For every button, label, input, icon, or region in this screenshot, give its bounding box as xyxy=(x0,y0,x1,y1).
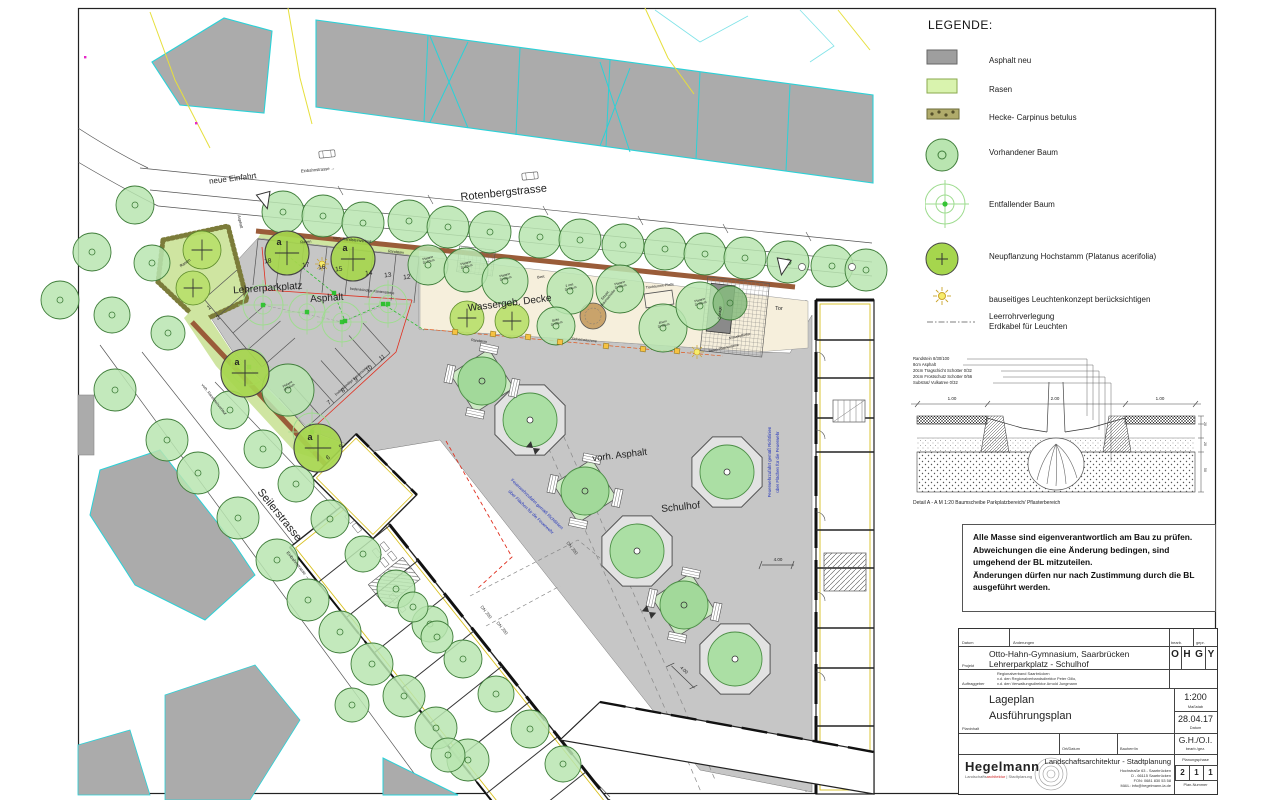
firm-sub-2: architektur xyxy=(987,774,1006,779)
planinhalt-line2: Ausführungsplan xyxy=(989,710,1072,722)
plan-label: 14 xyxy=(365,270,373,278)
detail-side-dim: 20 xyxy=(1203,422,1207,426)
col-datum: Datum xyxy=(962,640,973,645)
bearb-value: G.H./O.I. xyxy=(1174,735,1217,745)
bollard-circle xyxy=(849,264,856,271)
plan-label: 13 xyxy=(384,272,392,280)
existing-tree xyxy=(427,206,469,248)
car-symbol xyxy=(522,172,539,181)
plan-label: Einbahnstrasse → xyxy=(301,166,336,174)
existing-tree xyxy=(469,211,511,253)
detail-callout: 20cm Tragschicht Schotter 0/32 xyxy=(913,368,973,373)
existing-tree xyxy=(319,611,361,653)
datum-value: 28.04.17 xyxy=(1174,714,1217,724)
existing-tree xyxy=(511,710,549,748)
bauherr-label: Bauherr/in xyxy=(1120,746,1138,751)
note-line: ausgeführt werden. xyxy=(973,581,1205,594)
plan-label: 4.00 xyxy=(774,557,783,562)
projekt-label: Projekt xyxy=(962,663,974,668)
light-concept-icon xyxy=(925,286,961,306)
detail-caption: Detail A - A M 1:20 Baumscheibe Parkplat… xyxy=(913,500,1061,506)
existing-tree xyxy=(94,297,130,333)
plan-label: 18 xyxy=(264,258,272,266)
existing-tree xyxy=(537,307,575,345)
existing-tree xyxy=(431,738,465,772)
existing-tree xyxy=(684,233,726,275)
legend-title: LEGENDE: xyxy=(928,18,993,32)
light-marker xyxy=(674,348,680,354)
octagon-planter xyxy=(602,516,672,586)
detail-dim: 1.00 xyxy=(1156,396,1165,401)
phase-cell: 1 xyxy=(1189,765,1204,781)
ort-datum-label: Ort/Datum xyxy=(1062,746,1080,751)
existing-tree xyxy=(94,369,136,411)
plan-label: Garage xyxy=(717,305,723,319)
octagon-planter xyxy=(700,624,770,694)
plan-label: Asphalt xyxy=(310,292,344,305)
detail-callout: Substrat/ Vulkatree 0/32 xyxy=(913,380,958,385)
existing-tree xyxy=(302,195,344,237)
planungsphase-label: Planungsphase xyxy=(1174,757,1217,762)
note-line: Abweichungen die eine Änderung bedingen,… xyxy=(973,544,1205,557)
existing-tree xyxy=(345,536,381,572)
firm-address: MAIL: info@hegelmann-la.de xyxy=(1039,783,1171,788)
plan-label: 12 xyxy=(403,274,411,282)
existing-tree-icon xyxy=(925,136,965,174)
conduit-node xyxy=(343,319,347,323)
light-marker xyxy=(603,343,609,349)
existing-tree xyxy=(351,643,393,685)
legend-panel: LEGENDE: Asphalt neu Rasen Hecke- Carpin… xyxy=(925,18,1215,348)
existing-tree xyxy=(335,688,369,722)
existing-tree xyxy=(287,579,329,621)
plan-label: 17 xyxy=(302,262,310,270)
massstab-label: Maßstab xyxy=(1174,704,1217,709)
phase-cell: 2 xyxy=(1175,765,1190,781)
plan-label: Tor xyxy=(775,306,783,312)
plan-label: Asphalt xyxy=(237,215,245,230)
legend-item-label: Hecke- Carpinus betulus xyxy=(989,113,1077,122)
plan-label: DN 200 xyxy=(496,621,510,636)
plan-nummer-label: Plan-Nummer xyxy=(1174,782,1217,787)
massstab-value: 1:200 xyxy=(1174,692,1217,702)
note-line: Änderungen dürfen nur nach Zustimmung du… xyxy=(973,569,1205,582)
code-letter: O xyxy=(1169,649,1181,660)
existing-tree xyxy=(519,216,561,258)
code-letter: G xyxy=(1193,649,1205,660)
existing-tree xyxy=(278,466,314,502)
light-marker xyxy=(490,331,496,337)
car-symbol xyxy=(319,150,336,159)
col-gepr: gepr. xyxy=(1196,640,1205,645)
existing-tree xyxy=(644,228,686,270)
plan-label: über Flächen für die Feuerwehr xyxy=(775,431,780,493)
existing-tree xyxy=(134,245,170,281)
detail-dim: 1.00 xyxy=(948,396,957,401)
existing-tree xyxy=(388,200,430,242)
existing-tree xyxy=(724,237,766,279)
lawn-swatch-icon xyxy=(925,77,965,95)
existing-tree xyxy=(311,500,349,538)
octagon-planter xyxy=(692,437,762,507)
firm-sub-3: | Stadtplanung xyxy=(1005,774,1032,779)
projekt-line1: Otto-Hahn-Gymnasium, Saarbrücken xyxy=(989,649,1129,659)
light-marker xyxy=(452,329,458,335)
detail-dim-line xyxy=(911,401,1201,407)
plan-label: Feuerwehrzufahrt gemäß Richtlinien xyxy=(767,426,772,497)
detail-side-dim: 20 xyxy=(1203,442,1207,446)
legend-item-label: Rasen xyxy=(989,85,1012,94)
existing-tree xyxy=(421,621,453,653)
code-letter: H xyxy=(1181,649,1193,660)
new-tree-icon xyxy=(925,240,965,278)
firm-name: Hegelmann xyxy=(965,759,1040,774)
light-marker xyxy=(640,346,646,352)
plan-label: Rotenbergstrasse xyxy=(460,183,548,204)
conduit-line-icon xyxy=(925,316,977,328)
plan-label: DN 200 xyxy=(480,605,494,620)
new-tree xyxy=(294,424,342,472)
title-block: Datum Änderungen bearb. gepr. Projekt Ot… xyxy=(958,628,1218,795)
school-building-east xyxy=(816,300,874,794)
existing-tree xyxy=(383,675,425,717)
legend-item-label: Asphalt neu xyxy=(989,56,1031,65)
auftraggeber-label: Auftraggeber xyxy=(962,681,985,686)
bearb-gez-label: bearb./gez. xyxy=(1174,746,1217,751)
plan-label: 16 xyxy=(318,264,326,272)
existing-tree xyxy=(478,676,514,712)
existing-tree xyxy=(146,419,188,461)
legend-item-label: Vorhandener Baum xyxy=(989,148,1058,157)
legend-item-label: bauseitiges Leuchtenkonzept berücksichti… xyxy=(989,295,1150,304)
plan-label: neue Einfahrt xyxy=(209,171,258,186)
existing-tree xyxy=(602,224,644,266)
legend-item-label: Entfallender Baum xyxy=(989,200,1055,209)
light-marker xyxy=(557,339,563,345)
conduit-node xyxy=(381,302,385,306)
existing-tree xyxy=(444,248,488,292)
existing-tree xyxy=(177,452,219,494)
datum-label: Datum xyxy=(1174,725,1217,730)
col-bearb: bearb. xyxy=(1171,640,1182,645)
bollard-circle xyxy=(799,264,806,271)
detail-callout: 20cm Frostschutz Schotter 0/56 xyxy=(913,374,973,379)
firm-sub-1: Landschafts xyxy=(965,774,987,779)
legend-item-label: Leerrohrverlegung xyxy=(989,312,1054,321)
existing-tree xyxy=(41,281,79,319)
north-buildings xyxy=(152,18,873,183)
detail-callout: 8cm Asphalt xyxy=(913,362,937,367)
projekt-line2: Lehrerparkplatz - Schulhof xyxy=(989,659,1089,669)
existing-tree xyxy=(244,430,282,468)
hedge-swatch-icon xyxy=(925,106,965,122)
planinhalt-line1: Lageplan xyxy=(989,694,1034,706)
detail-dim: 2.00 xyxy=(1051,396,1060,401)
code-letter: Y xyxy=(1205,649,1217,660)
planinhalt-label: Planinhalt xyxy=(962,726,979,731)
detail-section-a-a: Randstein 8/30/100 8cm Asphalt 20cm Trag… xyxy=(897,352,1217,508)
existing-tree xyxy=(116,186,154,224)
site-plan-sheet: RotenbergstrasseSeilerstrasseneue Einfah… xyxy=(0,0,1280,800)
existing-tree xyxy=(398,592,428,622)
new-tree xyxy=(221,349,269,397)
light-marker xyxy=(525,334,531,340)
existing-tree xyxy=(151,316,185,350)
auftraggeber-line: v.d. den Verwaltungsdirektor Arnold Jung… xyxy=(997,681,1077,686)
note-line: umgehend der BL mitzuteilen. xyxy=(973,556,1205,569)
detail-callout: Randstein 8/30/100 xyxy=(913,356,950,361)
existing-tree xyxy=(217,497,259,539)
removed-tree-icon xyxy=(925,180,973,228)
plan-label: 15 xyxy=(335,266,343,274)
new-tree xyxy=(176,271,210,305)
sun-symbol xyxy=(690,345,704,359)
existing-tree xyxy=(545,746,581,782)
firm-title: Landschaftsarchitektur - Stadtplanung xyxy=(1039,757,1171,766)
existing-tree xyxy=(73,233,111,271)
legend-item-label: Neupflanzung Hochstamm (Platanus acerifo… xyxy=(989,252,1156,261)
legend-item-label: Erdkabel für Leuchten xyxy=(989,322,1067,331)
note-line: Alle Masse sind eigenverantwortlich am B… xyxy=(973,531,1205,544)
col-aenderungen: Änderungen xyxy=(1013,640,1034,645)
notes-box: Alle Masse sind eigenverantwortlich am B… xyxy=(962,524,1216,612)
existing-tree xyxy=(559,219,601,261)
asphalt-swatch-icon xyxy=(925,48,965,66)
detail-side-dim: 50 xyxy=(1203,468,1207,472)
existing-tree xyxy=(408,245,448,285)
phase-cell: 1 xyxy=(1203,765,1218,781)
